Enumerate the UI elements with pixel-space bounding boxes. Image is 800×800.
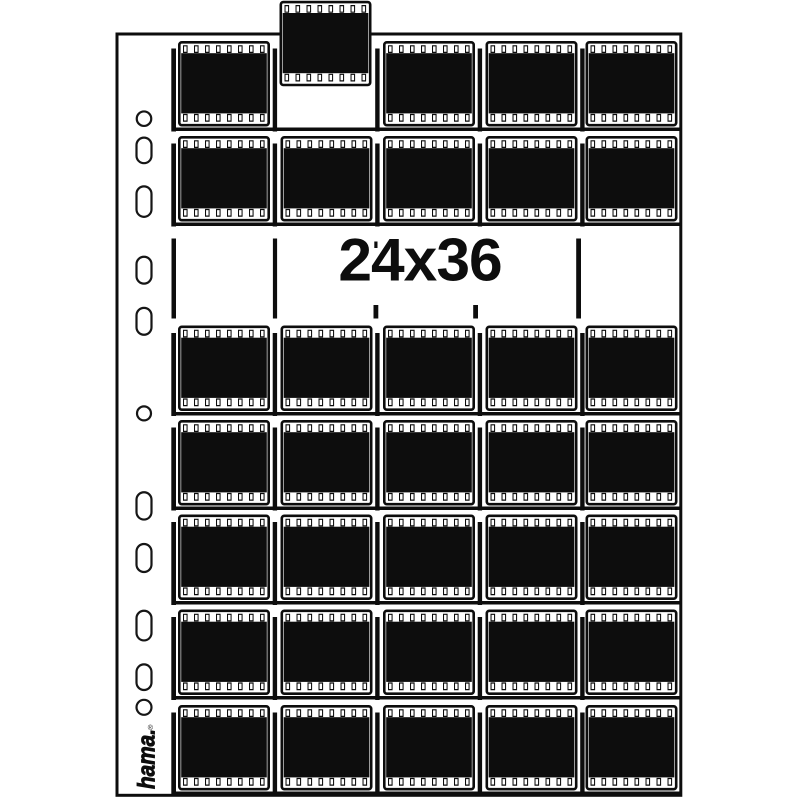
svg-text:®: ® [148, 724, 154, 732]
svg-text:24x36: 24x36 [338, 226, 501, 294]
svg-text:hama.: hama. [134, 729, 161, 789]
